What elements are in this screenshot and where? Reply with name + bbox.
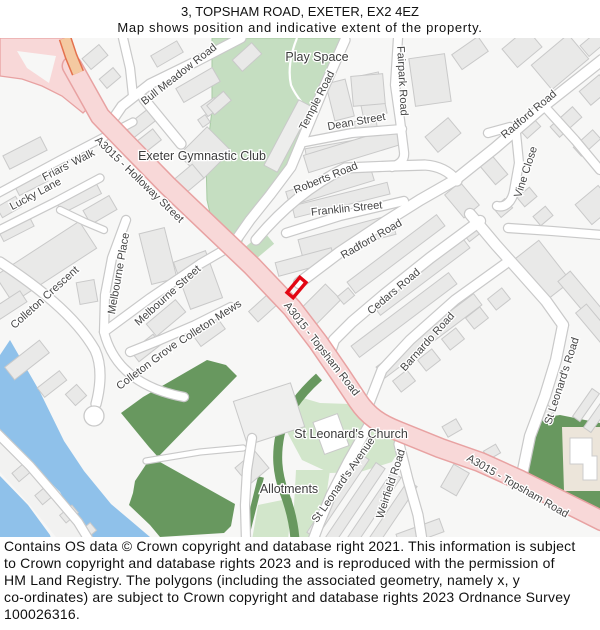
- svg-text:Allotments: Allotments: [260, 482, 318, 496]
- svg-text:Play Space: Play Space: [285, 50, 348, 64]
- svg-text:St Leonard's Church: St Leonard's Church: [294, 427, 408, 441]
- svg-text:Exeter Gymnastic Club: Exeter Gymnastic Club: [138, 149, 266, 163]
